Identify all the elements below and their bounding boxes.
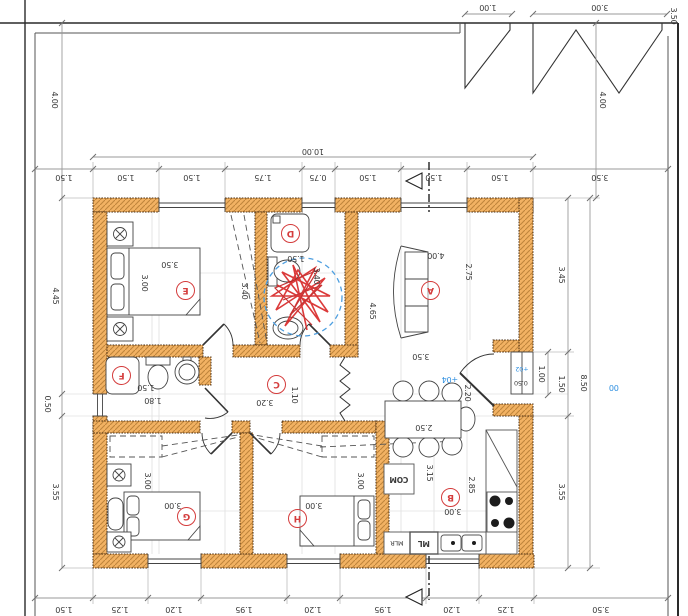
dim-left-2: 3.55 [50, 477, 60, 507]
appliance-mlr-label: MLR [382, 538, 412, 548]
site-level-label: 00 [599, 382, 629, 392]
dim-bottom-7: 1.25 [491, 604, 521, 614]
dim-h-1: 3.00 [355, 466, 365, 496]
dim-top-0: 1.50 [49, 172, 79, 182]
dim-step-depth: 0.50 [506, 378, 536, 388]
dim-e-1: 3.50 [155, 259, 185, 269]
dim-table: 2.50 [409, 422, 439, 432]
door-room-g [202, 433, 232, 454]
dim-f-1: 1.50 [131, 382, 161, 392]
dim-right-0: 3.45 [556, 260, 566, 290]
dim-bottom-4: 1.20 [298, 604, 328, 614]
dim-bottom-8: 3.50 [586, 604, 616, 614]
break-line [340, 357, 350, 421]
dim-porch-width: 1.00 [536, 359, 546, 389]
dim-e-3: 3.40 [239, 276, 249, 306]
dim-bottom-5: 1.95 [368, 604, 398, 614]
door-room-f [205, 388, 228, 418]
dim-gate-large: 3.00 [585, 2, 615, 12]
dim-top-5: 1.50 [353, 172, 383, 182]
dim-b-3: 3.00 [438, 506, 468, 516]
dim-top-8: 3.50 [585, 172, 615, 182]
room-label-b: B [441, 488, 460, 507]
dim-d-2: 3.40 [311, 261, 321, 291]
dim-boundary-right: 3.50 [668, 1, 678, 31]
door-room-h [250, 433, 280, 454]
room-label-d: D [281, 224, 300, 243]
dim-c-1: 3.20 [250, 397, 280, 407]
dim-top-4: 0.75 [303, 172, 333, 182]
gate-large [533, 23, 662, 93]
dim-setback-right: 4.00 [597, 85, 607, 115]
appliance-ml-label: ML [409, 538, 439, 548]
dim-top-3: 1.75 [248, 172, 278, 182]
dim-b-1: 3.15 [424, 458, 434, 488]
dim-d-1: 1.50 [281, 253, 311, 263]
dim-f-2: 1.80 [138, 395, 168, 405]
dim-g-1: 3.00 [142, 466, 152, 496]
dim-a-3: 4.65 [367, 296, 377, 326]
dim-b-2: 2.85 [466, 470, 476, 500]
dim-bottom-6: 1.20 [437, 604, 467, 614]
dim-top-7: 1.50 [485, 172, 515, 182]
level-step-label: +02 [507, 364, 537, 374]
room-label-f: F [112, 366, 131, 385]
room-label-c: C [267, 375, 286, 394]
door-room-e [203, 324, 233, 345]
dim-a-4: 3.50 [406, 351, 436, 361]
level-inside-label: +04 [435, 374, 465, 384]
dim-right-overall: 8.50 [578, 368, 588, 398]
dim-e-2: 3.00 [139, 268, 149, 298]
floor-plan-canvas: 1.00 3.00 3.50 4.00 4.00 10.00 1.50 1.50… [0, 0, 688, 616]
dim-bottom-2: 1.20 [159, 604, 189, 614]
dim-bottom-1: 1.25 [105, 604, 135, 614]
dim-right-2: 3.55 [556, 477, 566, 507]
room-label-a: A [421, 281, 440, 300]
dim-top-2: 1.50 [177, 172, 207, 182]
fridge-label: COM [384, 474, 414, 484]
dim-right-1: 1.50 [556, 369, 566, 399]
dim-a-1: 4.00 [421, 250, 451, 260]
dim-setback-left: 4.00 [49, 85, 59, 115]
dim-top-6: 1.50 [419, 172, 449, 182]
room-label-h: H [288, 509, 307, 528]
dim-h-2: 3.00 [299, 500, 329, 510]
dim-house-width: 10.00 [298, 146, 328, 156]
dim-left-0: 4.45 [50, 281, 60, 311]
dim-left-1: 0.50 [42, 389, 52, 419]
dim-entry-door: 2.20 [462, 378, 472, 408]
dim-c-2: 1.10 [289, 380, 299, 410]
gate-small [465, 23, 510, 88]
dim-top-1: 1.50 [111, 172, 141, 182]
dim-bottom-3: 1.95 [229, 604, 259, 614]
room-label-g: G [177, 507, 196, 526]
dim-gate-small: 1.00 [473, 2, 503, 12]
floor-plan-svg [0, 0, 688, 616]
dim-a-2: 2.75 [463, 257, 473, 287]
dim-bottom-0: 1.50 [49, 604, 79, 614]
room-label-e: E [176, 281, 195, 300]
